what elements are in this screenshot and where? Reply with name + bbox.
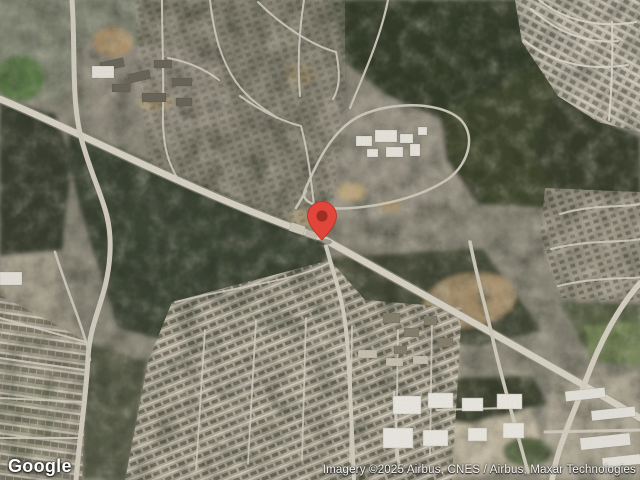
satellite-map[interactable]: Google Imagery ©2025 Airbus, CNES / Airb… [0, 0, 640, 480]
google-logo[interactable]: Google [8, 456, 72, 477]
satellite-imagery [0, 0, 640, 480]
imagery-attribution: Imagery ©2025 Airbus, CNES / Airbus, Max… [323, 464, 636, 476]
